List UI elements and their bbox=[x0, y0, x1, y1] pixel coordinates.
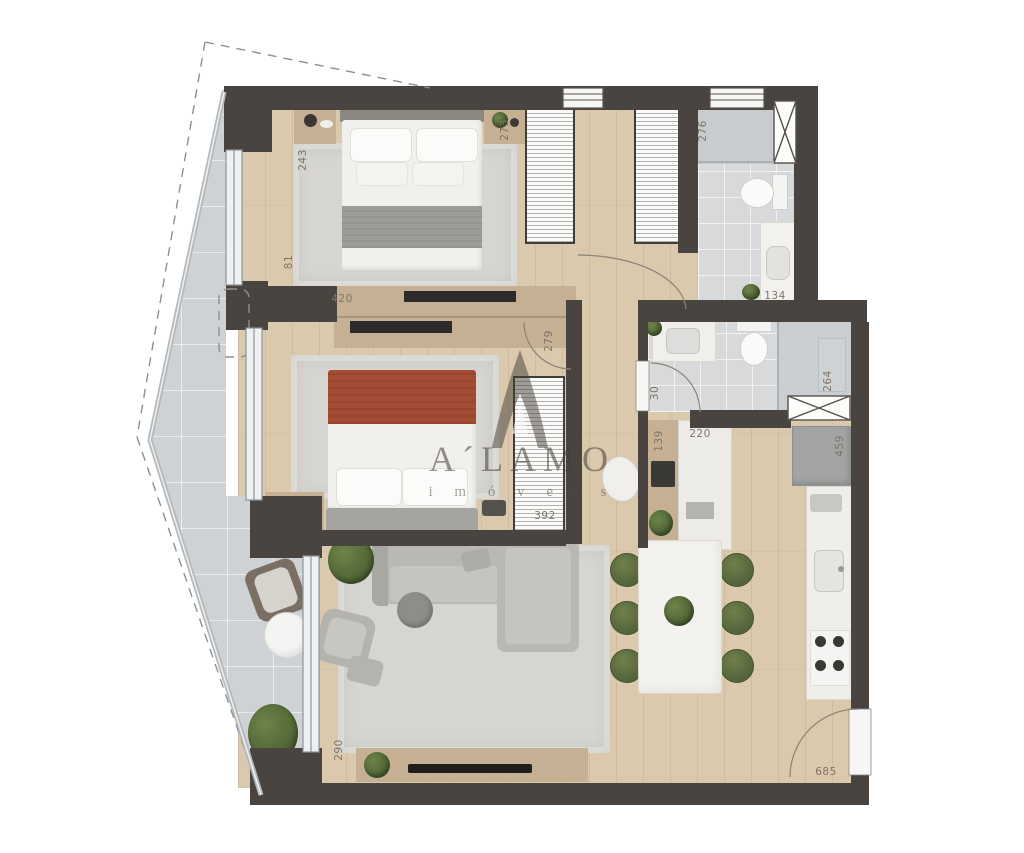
dim-desk-depth: 139 bbox=[653, 430, 665, 452]
dim-bathroom2-shower: 264 bbox=[822, 370, 834, 392]
wall-bathroom2-left bbox=[638, 318, 648, 414]
wall-bedroom2-right bbox=[566, 300, 582, 544]
wall-right-top bbox=[794, 86, 818, 322]
dim-bathroom1-depth: 276 bbox=[697, 120, 709, 142]
wall-desk-left bbox=[638, 414, 648, 548]
dim-living-window: 290 bbox=[333, 739, 345, 761]
dim-desk-width: 220 bbox=[689, 428, 711, 440]
watermark-subtitle: i m ó v e i s bbox=[402, 484, 642, 501]
dim-bedroom1-window: 81 bbox=[283, 255, 295, 269]
dim-bedroom1-closet: 273 bbox=[499, 119, 511, 141]
dim-bedroom2-wardrobe: 392 bbox=[534, 510, 556, 522]
wall-bottom bbox=[318, 783, 869, 805]
wall-bathroom1-left bbox=[678, 101, 698, 253]
watermark-brand: A´LAMO bbox=[402, 438, 642, 480]
dim-bathroom1-width: 134 bbox=[764, 290, 786, 302]
wall-top bbox=[248, 86, 818, 110]
wall-bedroom-divider bbox=[255, 286, 337, 322]
wall-bottom-left-corner bbox=[250, 748, 322, 805]
wall-bathroom2-bottom bbox=[690, 410, 791, 428]
wall-mid-horizontal bbox=[638, 300, 867, 322]
wall-left-lower bbox=[250, 496, 322, 558]
wall-right-lower bbox=[851, 322, 869, 805]
floor-plan: 243 273 81 420 276 134 279 30 264 139 22… bbox=[0, 0, 1024, 853]
alamo-logo-icon bbox=[488, 348, 552, 452]
dim-bedroom1-depth: 243 bbox=[297, 149, 309, 171]
dim-bedroom1-width: 420 bbox=[331, 293, 353, 305]
dim-bathroom2-door: 30 bbox=[649, 386, 661, 400]
wall-bedroom2-bottom bbox=[322, 530, 566, 546]
wall-top-left-corner bbox=[224, 86, 272, 152]
dim-kitchen-depth: 459 bbox=[834, 435, 846, 457]
dim-entry-width: 685 bbox=[815, 766, 837, 778]
